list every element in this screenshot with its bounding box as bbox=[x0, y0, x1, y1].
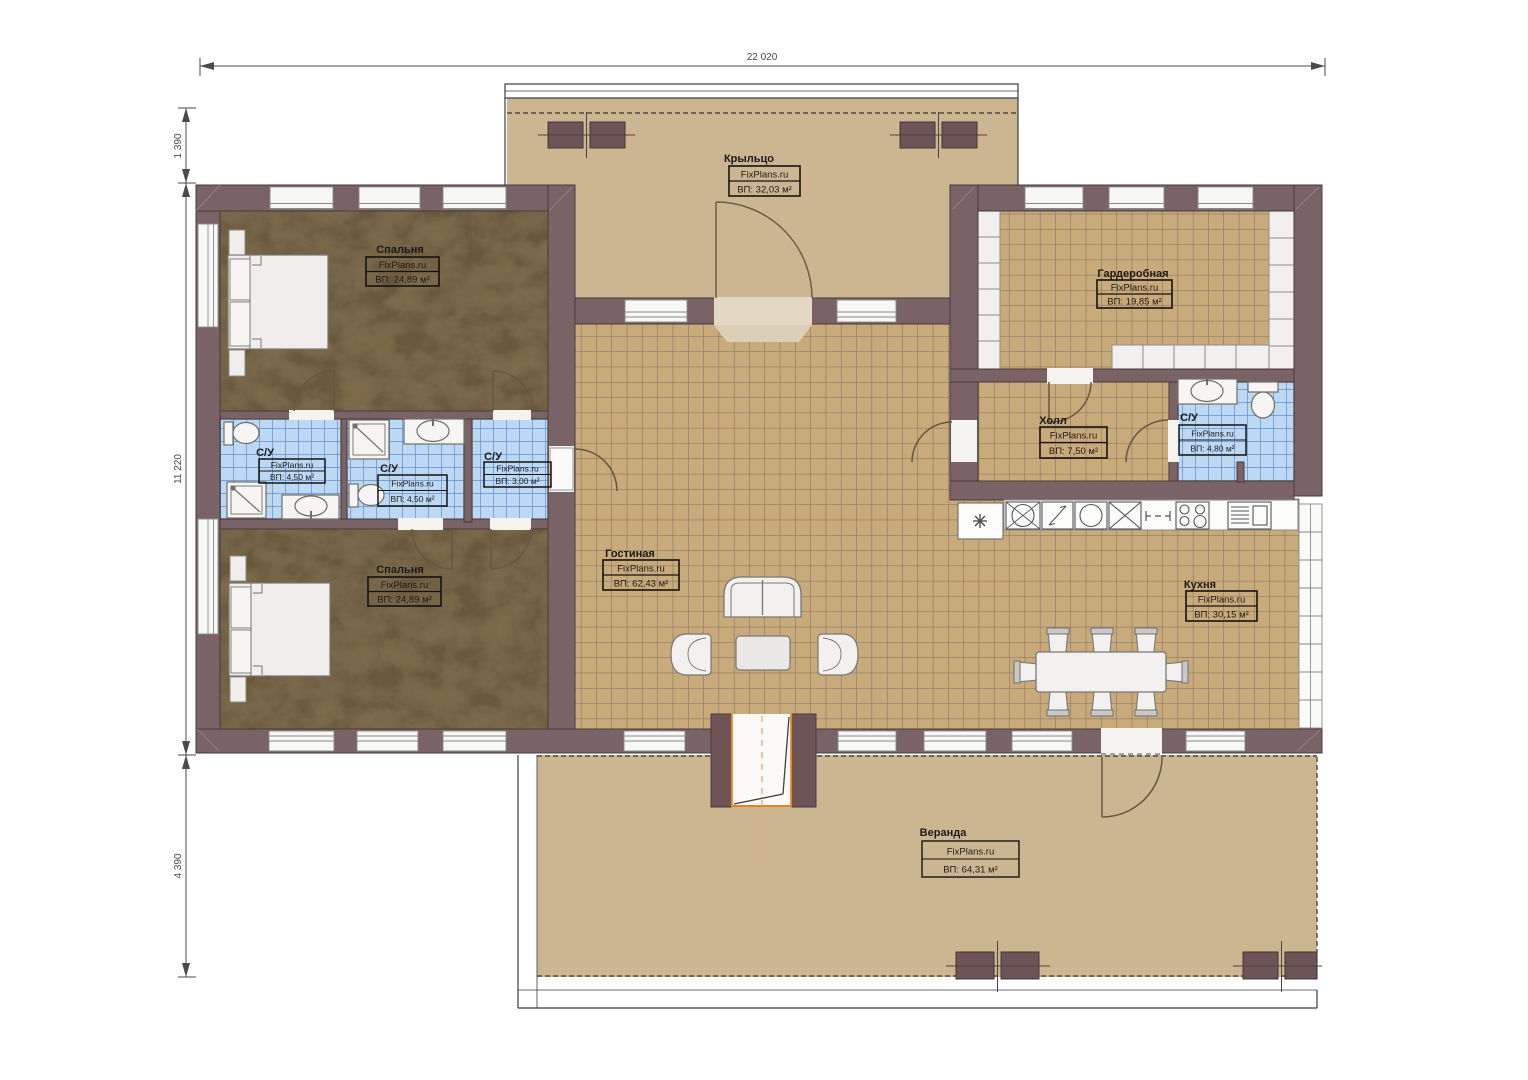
svg-text:С/У: С/У bbox=[256, 447, 274, 459]
svg-text:Крыльцо: Крыльцо bbox=[724, 153, 774, 165]
svg-text:22 020: 22 020 bbox=[747, 52, 778, 63]
svg-text:FixPlans.ru: FixPlans.ru bbox=[381, 580, 429, 591]
svg-text:FixPlans.ru: FixPlans.ru bbox=[379, 260, 427, 271]
svg-text:Холл: Холл bbox=[1039, 415, 1067, 427]
svg-text:FixPlans.ru: FixPlans.ru bbox=[947, 847, 995, 858]
svg-text:ВП: 4,50 м²: ВП: 4,50 м² bbox=[390, 494, 434, 504]
svg-text:FixPlans.ru: FixPlans.ru bbox=[496, 464, 539, 474]
svg-text:FixPlans.ru: FixPlans.ru bbox=[1198, 595, 1246, 606]
svg-text:ВП: 32,03 м²: ВП: 32,03 м² bbox=[737, 185, 792, 196]
svg-text:FixPlans.ru: FixPlans.ru bbox=[617, 564, 665, 575]
svg-text:FixPlans.ru: FixPlans.ru bbox=[1050, 431, 1098, 442]
svg-text:ВП: 24,89 м²: ВП: 24,89 м² bbox=[375, 275, 430, 286]
svg-text:1 390: 1 390 bbox=[173, 133, 184, 158]
svg-text:С/У: С/У bbox=[1180, 412, 1198, 424]
svg-text:Гардеробная: Гардеробная bbox=[1097, 268, 1168, 280]
svg-text:11 220: 11 220 bbox=[173, 454, 184, 484]
svg-text:Спальня: Спальня bbox=[376, 244, 424, 256]
svg-text:ВП: 24,89 м²: ВП: 24,89 м² bbox=[377, 595, 432, 606]
svg-text:FixPlans.ru: FixPlans.ru bbox=[741, 170, 789, 181]
svg-text:ВП: 4,50 м²: ВП: 4,50 м² bbox=[270, 472, 314, 482]
svg-text:ВП: 7,50 м²: ВП: 7,50 м² bbox=[1049, 446, 1098, 457]
svg-text:ВП: 30,15 м²: ВП: 30,15 м² bbox=[1194, 610, 1249, 621]
svg-text:Кухня: Кухня bbox=[1184, 579, 1216, 591]
svg-text:С/У: С/У bbox=[380, 463, 398, 475]
svg-text:ВП: 4,80 м²: ВП: 4,80 м² bbox=[1190, 444, 1234, 454]
svg-text:Веранда: Веранда bbox=[920, 827, 968, 839]
svg-text:Спальня: Спальня bbox=[376, 564, 424, 576]
svg-text:С/У: С/У bbox=[484, 451, 502, 463]
svg-text:Гостиная: Гостиная bbox=[605, 548, 655, 560]
svg-text:FixPlans.ru: FixPlans.ru bbox=[391, 479, 434, 489]
svg-text:FixPlans.ru: FixPlans.ru bbox=[271, 460, 314, 470]
svg-text:ВП: 62,43 м²: ВП: 62,43 м² bbox=[614, 579, 669, 590]
svg-text:4 390: 4 390 bbox=[173, 853, 184, 878]
svg-text:ВП: 64,31 м²: ВП: 64,31 м² bbox=[943, 865, 998, 876]
svg-text:ВП: 3,00 м²: ВП: 3,00 м² bbox=[495, 476, 539, 486]
svg-text:ВП: 19,85 м²: ВП: 19,85 м² bbox=[1107, 297, 1162, 308]
svg-text:FixPlans.ru: FixPlans.ru bbox=[1191, 429, 1234, 439]
svg-text:FixPlans.ru: FixPlans.ru bbox=[1111, 283, 1159, 294]
